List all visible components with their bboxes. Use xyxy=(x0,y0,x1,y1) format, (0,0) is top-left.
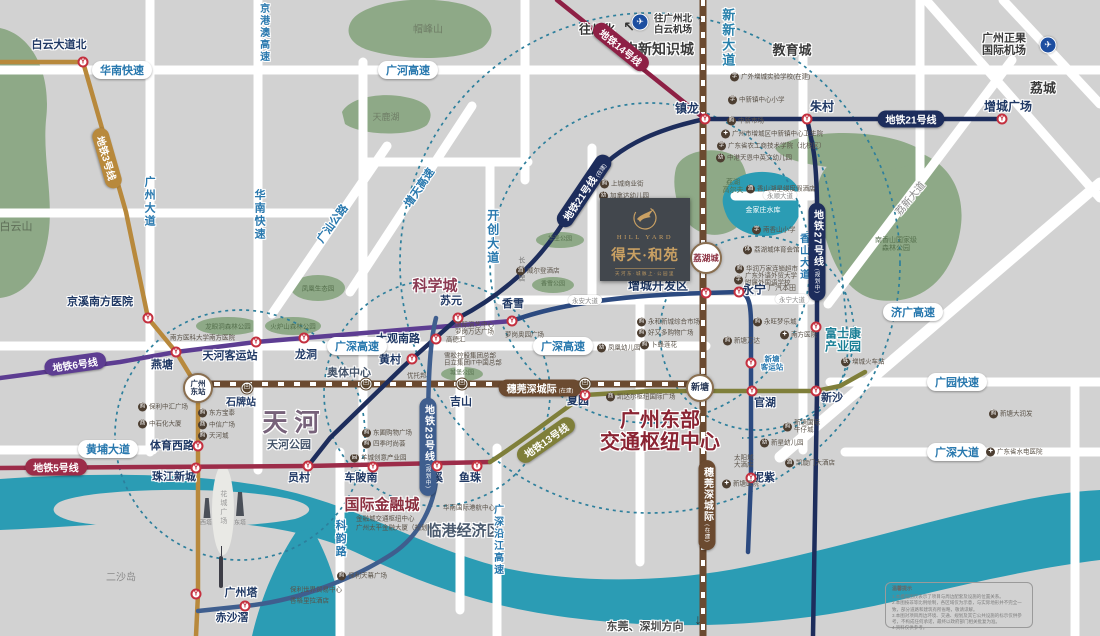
poi-utopa: 优托邦 xyxy=(407,372,427,379)
xinxin-avenue-label: 新新大道 xyxy=(720,8,735,68)
pill-suiwanshen-rail-v: 穗莞深城际(在建) xyxy=(699,460,716,550)
poi-gac-honda: 广汽本田 xyxy=(768,285,796,293)
east-tower-label: 东塔 xyxy=(234,521,246,528)
pill-guangyuan-expwy: 广园快速 xyxy=(927,373,987,391)
station-xiangxue: Y xyxy=(507,316,518,327)
poi-dongfang-baotai: 购东方宝泰 xyxy=(198,409,235,418)
xiangshan-avenue-label: 香山大道 xyxy=(797,233,808,281)
poi-xinxing-kindergarten: 幼新星幼儿园 xyxy=(760,439,804,448)
pill-metro-line6: 地铁6号线 xyxy=(43,351,106,376)
poi-poly-wtc: 保利世界贸易中心 xyxy=(290,586,342,593)
station-xinsha: Y xyxy=(811,386,822,397)
chebeinan-label: 车陂南 xyxy=(345,472,378,484)
xiangxue-park-label: 香雪公园 xyxy=(541,282,565,289)
guangshan-road-label: 广汕公路 xyxy=(315,203,351,246)
chishajiao-label: 赤沙滘 xyxy=(216,612,249,624)
station-xintang-coach: Y xyxy=(746,358,757,369)
baiyunshan-label: 白云山 xyxy=(0,221,33,233)
tianluhu-label: 天鹿湖 xyxy=(372,112,399,122)
zhujiang-newtown-label: 珠江新城 xyxy=(152,471,196,483)
poi-zengcheng-railway-station: 铁增城火车站 xyxy=(841,358,885,367)
intl-finance-city-label: 国际金融城 xyxy=(344,498,419,515)
railstation-jishan: 回 xyxy=(457,379,468,390)
poi-port-shipping-center: 华南国际港航中心 xyxy=(443,504,495,511)
station-yongning: Y xyxy=(734,287,745,298)
station-chishajiao: Y xyxy=(240,601,251,612)
railstation-shipai: 回 xyxy=(242,383,253,394)
poi-bufeng-lianhua: 购卜蜂莲花 xyxy=(640,341,677,350)
station-guanhu: Y xyxy=(747,386,758,397)
poi-citic-plaza: 商中信广场 xyxy=(198,421,235,430)
pill-huangpu-avenue: 黄埔大道 xyxy=(78,440,138,458)
pill-guangshen-expwy-west: 广深高速 xyxy=(327,337,387,355)
to-baiyun-airport-label: 往广州北 白云机场 xyxy=(654,14,692,35)
pill-metro-line23: 地铁23号线(规划中) xyxy=(420,398,437,496)
poi-sinopec-tower: 商中石化大厦 xyxy=(138,420,182,429)
station-xiayuan: Y xyxy=(580,390,591,401)
map-labels-layer: 白云山帽峰山天鹿湖二沙岛天 河天河公园奥体中心科学城中新知识城教育城荔城广州正果… xyxy=(0,0,1100,636)
railstation-xiayuan: 回 xyxy=(580,379,591,390)
huolushan-forest-park-label: 火炉山森林公园 xyxy=(270,323,316,330)
pill-yongning-avenue: 永宁大道 xyxy=(775,294,809,304)
lihu-golf-label: 荔湖 高尔夫 xyxy=(723,179,744,195)
poi-aeon-mall: 购永旺梦乐城 xyxy=(753,318,797,327)
zengcheng-square-label: 增城广场 xyxy=(984,100,1032,113)
pill-suiwanshen-rail-h: 穗莞深城际(在建) xyxy=(499,380,582,397)
poi-shuidian-hospital: ✚广东省水电医院 xyxy=(986,448,1043,457)
chengbao-park-label: 城堡公园 xyxy=(450,371,474,378)
station-sanxi: Y xyxy=(432,461,443,472)
poi-fenghuang-kindergarten: 幼凤凰幼儿园 xyxy=(597,344,641,353)
station-yuzhu: Y xyxy=(472,461,483,472)
project-name-cn: 得天·和苑 xyxy=(611,244,679,265)
poi-guangwai-school: 学广外增城实验学校(在建) xyxy=(730,73,810,82)
xinsha-label: 新沙 xyxy=(821,392,843,404)
huacheng-square-label: 花城广场 xyxy=(219,490,227,526)
poi-siji-fashion: 购四季时尚荟 xyxy=(362,440,406,449)
conghua-arrow-icon: ↖ xyxy=(623,19,635,36)
pill-guangshen-avenue: 广深大道 xyxy=(927,443,987,461)
kexuecheng-label: 科学城 xyxy=(412,279,457,296)
station-zhujiang-newtown: Y xyxy=(191,463,202,474)
pill-metro-line21-east: 地铁21号线 xyxy=(877,111,944,128)
maofengshan-label: 帽峰山 xyxy=(413,24,443,35)
canton-tower-label: 广州塔 xyxy=(225,587,258,599)
poi-zhongxin-clinic: ✚广州市增城区中新镇中心卫生院 xyxy=(721,130,823,139)
poi-yangcheng-creative-park: 园羊城创意产业园 xyxy=(350,454,407,463)
station-huangcun: Y xyxy=(407,354,418,365)
disclaimer-line: 3.本图对项目周边环境、交通、规划及其它公共设施的标示仅供参考，不构成任何承诺，… xyxy=(892,613,1026,626)
poi-taiyangcheng-hotel: 太阳城 大酒店 xyxy=(734,455,754,470)
pill-metro-line5: 地铁5号线 xyxy=(25,459,87,476)
pill-jiguang-expwy: 济广高速 xyxy=(883,303,943,321)
huanan-expwy-vertical-label: 华南快速 xyxy=(253,189,265,241)
poi-nanxiangshan-primary: 学南香山小学 xyxy=(752,226,796,235)
jinggangao-expwy-label: 京港澳高速 xyxy=(257,3,268,63)
poi-hitachi-hq: 日立集团IT中国总部 xyxy=(444,359,502,366)
poi-finance-city-hub: 金融城交通枢纽中心 xyxy=(356,515,415,522)
poi-poly-tianmu: 购保利天幕广场 xyxy=(337,572,387,581)
railstation-aoti: 回 xyxy=(361,379,372,390)
station-yuancun: Y xyxy=(303,461,314,472)
west-tower-icon xyxy=(204,498,211,518)
east-transport-hub-label: 广州东部 交通枢纽中心 xyxy=(600,410,720,455)
station-zengcheng-square: Y xyxy=(997,114,1008,125)
jingxi-hospital-label: 京溪南方医院 xyxy=(67,296,133,308)
poi-yonghe-market: 购永和新城综合市场 xyxy=(637,318,700,327)
poi-nonggongshang-college: 学广东省农工商技术学院（北校区） xyxy=(717,142,826,151)
disclaimer-line: 4.资料仅供参考。 xyxy=(892,625,1026,631)
pill-guangshen-expwy-east: 广深高速 xyxy=(533,337,593,355)
station-daguannanlu: Y xyxy=(431,334,442,345)
poi-xintang-wanda: 购新塘万达 xyxy=(723,337,760,346)
yuancun-label: 员村 xyxy=(288,472,310,484)
kaichuang-avenue-label: 开创大道 xyxy=(485,209,498,265)
foxconn-park-label: 富士康 产业园 xyxy=(825,328,861,355)
poi-teemall: 购天河城 xyxy=(198,432,229,441)
lixin-avenue-label: 荔新大道 xyxy=(894,180,928,218)
poi-shangcheng-street: 购上城商业街 xyxy=(600,180,644,189)
tianhe-park-label: 天河公园 xyxy=(267,439,311,451)
hub-guangzhou-east-station: 广州 东站 xyxy=(183,373,213,403)
poi-nanfang-hospital: ✚南方医院 xyxy=(780,331,817,340)
poi-zhongxin-primary: 学中新镇中心小学 xyxy=(728,96,785,105)
zengcheng-devzone-label: 增城开发区 xyxy=(628,279,688,292)
east-tower-icon xyxy=(236,492,244,516)
hill-yard-bird-icon xyxy=(630,203,660,233)
station-tianhe-coach: Y xyxy=(251,337,262,348)
fenghuang-eco-park-label: 凤凰生态园 xyxy=(302,285,335,292)
aoti-center-label: 奥体中心 xyxy=(327,367,371,379)
guangzhou-avenue-label: 广州大道 xyxy=(143,176,155,228)
station-tiyuxilu: Y xyxy=(193,441,204,452)
jinjiazhuang-reservoir-label: 金家庄水库 xyxy=(746,207,781,215)
poi-haoyouduo-mall: 购好又多购物广场 xyxy=(637,329,694,338)
map-canvas: 白云山帽峰山天鹿湖二沙岛天 河天河公园奥体中心科学城中新知识城教育城荔城广州正果… xyxy=(0,0,1100,636)
disclaimer-title: 温馨提示 xyxy=(892,586,1026,593)
station-chebeinan: Y xyxy=(368,462,379,473)
poi-weierdeng-hotel: 酒威尔登酒店 xyxy=(516,267,560,276)
pill-metro-line13: 地铁13号线 xyxy=(514,414,579,466)
xintang-coach-terminal-label: 新塘 客运站 xyxy=(761,356,784,373)
poi-dongpu-mall: 购东圃购物广场 xyxy=(362,429,412,438)
longyandong-forest-park-label: 龙眼洞森林公园 xyxy=(205,323,251,330)
ershadao-label: 二沙岛 xyxy=(106,572,136,583)
station-canton-tower: Y xyxy=(191,589,202,600)
yantang-label: 燕塘 xyxy=(151,359,173,371)
jishan-label: 吉山 xyxy=(450,396,472,408)
baiyundadaobei-label: 白云大道北 xyxy=(32,39,87,51)
station-longdong: Y xyxy=(299,333,310,344)
lingang-economic-zone-label: 临港经济区 xyxy=(426,524,501,541)
station-baiyundadaobei: Y xyxy=(78,57,89,68)
station-zhenlong: Y xyxy=(700,114,711,125)
huangcun-label: 黄村 xyxy=(379,354,401,366)
suyuan-label: 苏元 xyxy=(440,295,462,307)
poi-gaodehui: 高德汇 xyxy=(446,336,466,343)
pill-guanghe-expwy: 广河高速 xyxy=(378,61,438,79)
pill-yongan-avenue: 永安大道 xyxy=(568,295,602,305)
poi-xintang-rtmart: 购新塘大润发 xyxy=(989,410,1033,419)
zhengguo-airport-label: 广州正果 国际机场 xyxy=(982,33,1026,58)
pill-metro-line3: 地铁3号线 xyxy=(90,126,123,190)
station-zengcheng-devzone: Y xyxy=(701,288,712,299)
nanxiangshan-forest-park-label: 南香山国家级 森林公园 xyxy=(875,237,917,253)
poi-zhongxin-market: 购中新市场 xyxy=(727,117,764,126)
poi-zhonggang-kindergarten: 幼中港天恩中英文幼儿园 xyxy=(716,154,792,163)
west-tower-label: 西塔 xyxy=(200,521,212,528)
keyun-road-label: 科韵路 xyxy=(334,520,346,559)
poi-kaixuanmen-hotel: 酒凯旋门大酒店 xyxy=(785,459,835,468)
shipai-station-label: 石牌站 xyxy=(226,397,256,408)
project-slogan: 天河东·城脉上·公园里 xyxy=(615,268,675,277)
zhucun-label: 朱村 xyxy=(810,100,834,113)
hub-lihucheng: 荔湖城 xyxy=(690,242,722,274)
project-logo-card: HILL YARD 得天·和苑 天河东·城脉上·公园里 xyxy=(600,198,690,281)
poi-taiping-finance-tower: 广州太平金融大厦（规划） xyxy=(356,524,434,531)
xiangxue-label: 香雪 xyxy=(502,298,524,310)
poi-lihucheng-sports: 体荔湖城体育会馆 xyxy=(743,246,800,255)
longdong-label: 龙洞 xyxy=(295,349,317,361)
station-jingxi-hospital: Y xyxy=(143,313,154,324)
station-zhucun: Y xyxy=(802,114,813,125)
canton-tower-icon xyxy=(219,556,223,588)
poi-poly-zhonghui: 购保利中汇广场 xyxy=(138,403,188,412)
poi-luogang-wanda: 萝岗万达广场 xyxy=(455,328,494,335)
jiaoyucheng-label: 教育城 xyxy=(772,44,811,59)
disclaimer-line: 2.本图按非等比例绘制，各区域仅为示意，与实际地形并不完全一致，部分道路和建筑有… xyxy=(892,600,1026,613)
dongguan-shenzhen-direction-label: 东莞、深圳方向 xyxy=(607,621,684,633)
yuzhu-label: 鱼珠 xyxy=(459,472,481,484)
station-yantang: Y xyxy=(171,347,182,358)
zengtian-expwy-label: 增天高速 xyxy=(403,166,438,209)
poi-kaidaer-plaza: 商凯达尔枢纽国际广场 xyxy=(606,393,676,402)
tiyuxilu-label: 体育西路 xyxy=(150,440,194,452)
dongguan-arrow-icon: ↓ xyxy=(695,611,702,627)
disclaimer-note: 温馨提示 1.本模型图仅表示了项目与周边配套及设施的位置关系。 2.本图按非等比… xyxy=(885,582,1033,628)
project-name-en: HILL YARD xyxy=(617,234,673,241)
poi-luogang-aoyuan: 萝岗奥园广场 xyxy=(505,331,544,338)
tianhe-label: 天 河 xyxy=(263,409,320,437)
poi-southern-medical-hospital: 南方医科大学南方医院 xyxy=(170,334,235,341)
huasheng-park-label: 华圣公园 xyxy=(548,237,572,244)
pill-huanan-expwy: 华南快速 xyxy=(92,61,152,79)
yanjiang-expwy-label: 广深沿江高速 xyxy=(491,504,502,576)
hub-xintang-station: 新塘 xyxy=(686,374,714,402)
tianhe-coach-terminal-label: 天河客运站 xyxy=(203,350,258,362)
pill-metro-line27: 地铁27号线(规划中) xyxy=(809,203,826,301)
airport-arrow-icon: ↑ xyxy=(697,12,704,28)
zhenlong-label: 镇龙 xyxy=(675,102,699,115)
zhengguo-airport-plane-icon: ✈ xyxy=(1040,37,1057,54)
poi-xintang-hospital: ✚新塘医院 xyxy=(722,480,759,489)
guanhu-label: 官湖 xyxy=(754,397,776,409)
licheng-label: 荔城 xyxy=(1030,82,1056,97)
poi-jeans-city: 购新塘国际 牛仔城 xyxy=(783,420,820,435)
poi-shangrila-hotel: 香格里拉酒店 xyxy=(290,597,329,604)
poi-xiangshanhu-hotel: 酒香山湖星缦度假酒店 xyxy=(746,185,816,194)
